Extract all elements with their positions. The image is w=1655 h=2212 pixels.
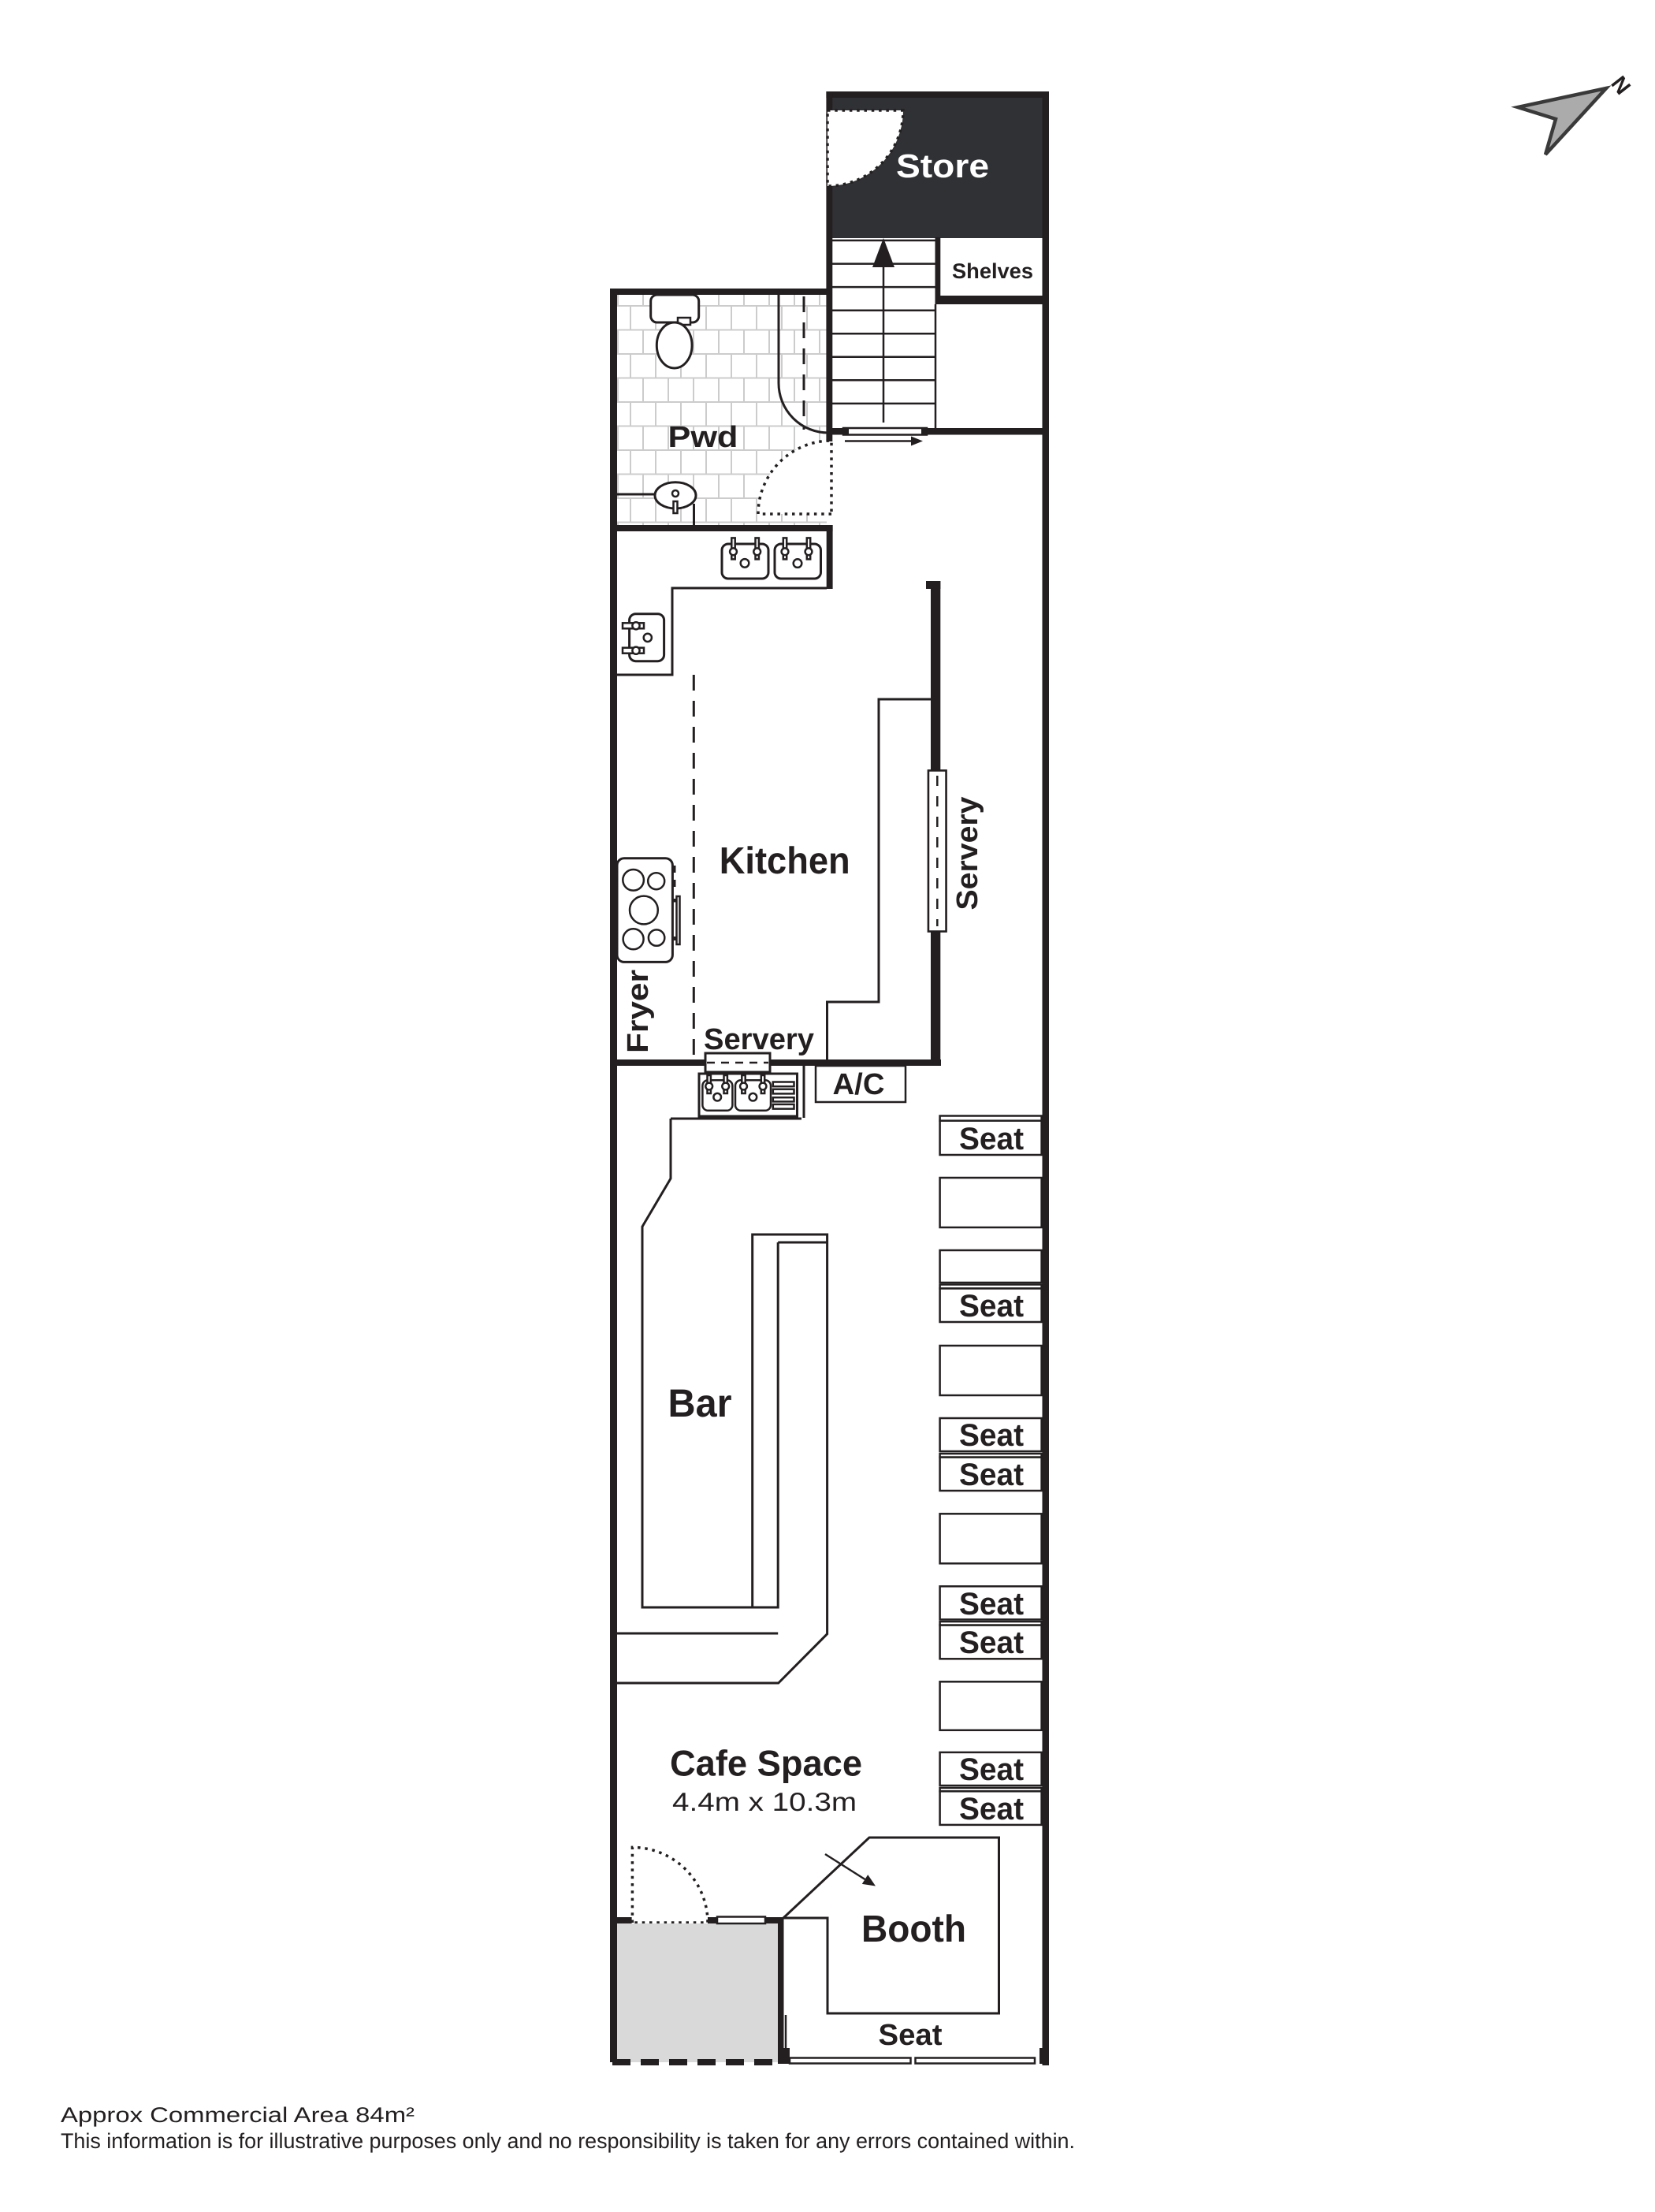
svg-text:Kitchen: Kitchen bbox=[720, 840, 850, 882]
svg-text:Bar: Bar bbox=[668, 1381, 732, 1425]
svg-text:Seat: Seat bbox=[959, 1122, 1024, 1156]
svg-text:Seat: Seat bbox=[959, 1625, 1024, 1660]
svg-text:Seat: Seat bbox=[959, 1587, 1024, 1622]
svg-text:Seat: Seat bbox=[959, 1792, 1024, 1827]
svg-text:Fryer: Fryer bbox=[622, 970, 655, 1053]
svg-text:4.4m x 10.3m: 4.4m x 10.3m bbox=[672, 1787, 857, 1816]
svg-text:Pwd: Pwd bbox=[668, 421, 738, 454]
svg-text:This information is for illust: This information is for illustrative pur… bbox=[61, 2129, 1075, 2153]
svg-text:Seat: Seat bbox=[959, 1289, 1024, 1324]
svg-text:Seat: Seat bbox=[879, 2019, 943, 2052]
svg-text:Store: Store bbox=[896, 147, 989, 184]
svg-text:Booth: Booth bbox=[861, 1909, 966, 1950]
svg-text:Servery: Servery bbox=[704, 1023, 814, 1056]
svg-text:Servery: Servery bbox=[951, 797, 984, 910]
svg-text:Seat: Seat bbox=[959, 1418, 1024, 1453]
svg-text:A/C: A/C bbox=[833, 1068, 885, 1101]
svg-text:Shelves: Shelves bbox=[952, 259, 1033, 283]
svg-text:Seat: Seat bbox=[959, 1752, 1024, 1787]
svg-text:Approx Commercial Area 84m²: Approx Commercial Area 84m² bbox=[61, 2103, 415, 2127]
svg-text:Seat: Seat bbox=[959, 1458, 1024, 1492]
svg-text:Cafe Space: Cafe Space bbox=[670, 1743, 862, 1784]
